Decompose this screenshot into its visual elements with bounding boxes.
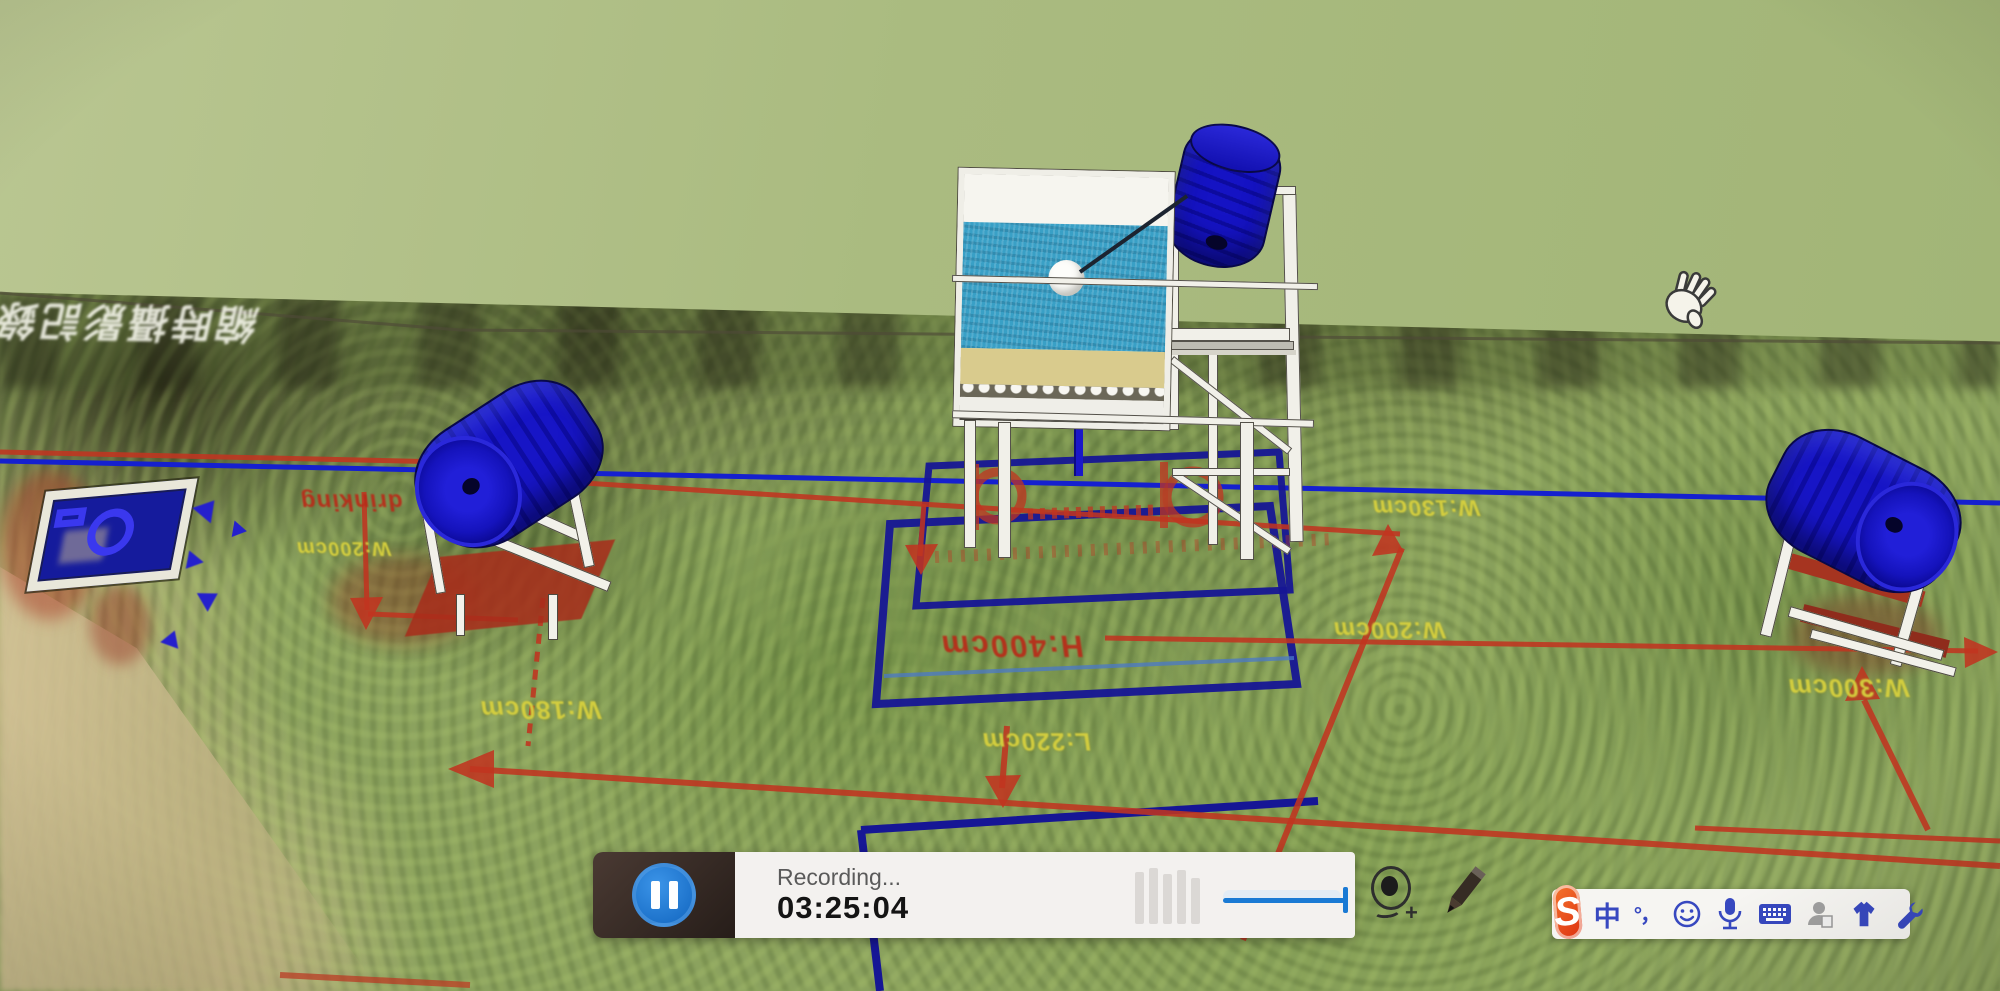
- dim-label-w200-right: W:200cm: [1331, 615, 1447, 643]
- microphone-icon: [1715, 897, 1745, 931]
- keyboard-icon: [1758, 901, 1792, 927]
- sogou-logo[interactable]: S: [1552, 884, 1583, 940]
- annotate-pencil-button[interactable]: [1435, 862, 1491, 924]
- chinese-mode-button[interactable]: 中: [1594, 895, 1621, 934]
- pause-icon: [669, 881, 678, 909]
- voice-input-button[interactable]: [1715, 897, 1745, 931]
- meter-bar: [1149, 868, 1158, 924]
- wrench-icon: [1893, 899, 1923, 929]
- emoji-button[interactable]: [1672, 899, 1702, 929]
- tower-mid-post: [1208, 350, 1218, 545]
- ime-toolbar: S 中 °，: [1552, 889, 1910, 939]
- audio-level-meter: [1135, 868, 1200, 924]
- tank-top-band: [964, 174, 1169, 226]
- account-icon: [1805, 899, 1835, 929]
- account-button[interactable]: [1805, 899, 1835, 929]
- virtual-keyboard-button[interactable]: [1758, 901, 1792, 927]
- left-barrel-assembly: [398, 398, 618, 638]
- dim-label-h400: H:400cm: [937, 628, 1085, 664]
- ground-watermark-text: 縮時攝影記錄: [0, 294, 263, 356]
- stand-leg: [548, 594, 558, 640]
- recorder-left-section: [593, 852, 735, 938]
- emoji-icon: [1672, 899, 1702, 929]
- recorder-status-block: Recording... 03:25:04: [777, 864, 909, 926]
- platform-lip: [1166, 350, 1296, 355]
- slider-fill: [1223, 898, 1345, 903]
- toolbox-button[interactable]: [1893, 899, 1923, 929]
- camera-body-glyph: [54, 507, 87, 528]
- add-webcam-button[interactable]: +: [1367, 864, 1423, 924]
- meter-bar: [1191, 878, 1200, 924]
- dim-label-w130: W:130cm: [1370, 494, 1481, 521]
- barrel-platform: [1170, 328, 1290, 341]
- tank-sand-layer: [960, 348, 1165, 388]
- recording-timer: 03:25:04: [777, 890, 909, 926]
- pause-button[interactable]: [632, 863, 696, 927]
- webcam-base: [1372, 903, 1401, 920]
- pencil-icon: [1435, 862, 1491, 924]
- volume-slider[interactable]: [1223, 890, 1355, 910]
- tower-leg: [964, 420, 976, 548]
- camera-lens-glyph: [83, 507, 138, 558]
- camera-marker-icon[interactable]: [27, 478, 198, 591]
- dim-label-drinking: drinking: [298, 487, 405, 515]
- barrel-cap: [1204, 233, 1229, 252]
- tower-leg: [998, 422, 1011, 558]
- tower-leg: [1240, 422, 1254, 560]
- screen-recorder-toolbar: Recording... 03:25:04 +: [593, 852, 1355, 938]
- punctuation-button[interactable]: °，: [1634, 899, 1659, 929]
- skin-button[interactable]: [1848, 900, 1880, 928]
- right-barrel-assembly: [1756, 452, 1976, 702]
- dim-label-l220: L:220cm: [980, 726, 1093, 755]
- pan-hand-cursor: [1652, 266, 1732, 346]
- tower-cross-bar: [1172, 468, 1290, 476]
- webcam-lens: [1381, 876, 1398, 896]
- recorder-panel: Recording... 03:25:04 +: [735, 852, 1355, 938]
- meter-bar: [1135, 872, 1144, 924]
- pause-icon: [651, 881, 660, 909]
- meter-bar: [1163, 874, 1172, 924]
- selection-triangle: [232, 521, 249, 540]
- sketchup-3d-viewport[interactable]: 縮時攝影記錄 drinking H:80cm W:200cm W:180cm H…: [0, 0, 2000, 991]
- plus-icon: +: [1405, 900, 1418, 926]
- platform-underside: [1170, 341, 1294, 350]
- recording-status-text: Recording...: [777, 864, 909, 890]
- meter-bar: [1177, 870, 1186, 924]
- shirt-icon: [1848, 900, 1880, 928]
- slider-handle[interactable]: [1343, 887, 1348, 913]
- stand-leg: [456, 594, 465, 636]
- dim-label-w200-left: W:200cm: [294, 536, 392, 559]
- dim-label-w180: W:180cm: [478, 694, 603, 725]
- filter-tank: [953, 168, 1174, 430]
